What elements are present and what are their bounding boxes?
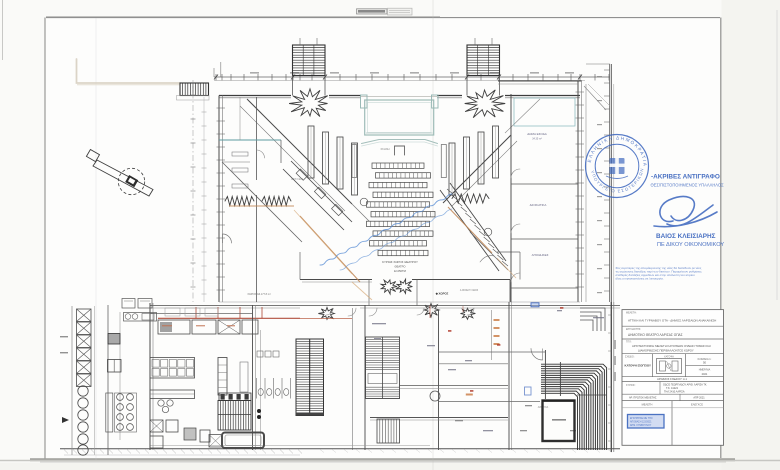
svg-text:ΔΙΟΙΚΗΤΙΚΑ: ΔΙΟΙΚΗΤΙΚΑ <box>530 203 547 207</box>
svg-text:ΚΥΡΙΩΣ ΧΩΡΟΣ ΘΕΑΤΡΟΥ: ΚΥΡΙΩΣ ΧΩΡΟΣ ΘΕΑΤΡΟΥ <box>382 260 418 264</box>
svg-text:ΚΑΤΟΨΗ ΙΣΟΓΕΙΟΥ: ΚΑΤΟΨΗ ΙΣΟΓΕΙΟΥ <box>625 364 652 368</box>
svg-text:ΑΠΡ 2021: ΑΠΡ 2021 <box>693 397 705 400</box>
svg-text:ΑΡΙΘΜΟΣ ΣΧΕΔΙΟΥ: Α.1: ΑΡΙΘΜΟΣ ΣΧΕΔΙΟΥ: Α.1 <box>657 377 687 381</box>
svg-text:ΑΠΟΘΗΚΕΣ: ΑΠΟΘΗΚΕΣ <box>532 253 549 257</box>
svg-text:ΟΔΟΣ ΓΕΩΡΓΙΑΔΟΥ ΑΡΙΘ. ΛΑΡΙΣΑ Τ: ΟΔΟΣ ΓΕΩΡΓΙΑΔΟΥ ΑΡΙΘ. ΛΑΡΙΣΑ ΤΚ <box>663 383 707 386</box>
svg-text:ΔΗΜΟΤΙΚΟ ΘΕΑΤΡΟ ΛΑΡΙΣΑΣ ΟΠΑΣ: ΔΗΜΟΤΙΚΟ ΘΕΑΤΡΟ ΛΑΡΙΣΑΣ ΟΠΑΣ <box>628 333 683 337</box>
svg-text:όλες οι εγκαταστάσεις σε λειτο: όλες οι εγκαταστάσεις σε λειτουργία. <box>616 277 664 281</box>
svg-text:ΕΓΚΡΙΘΗΚΕ ΜΕ ΤΗΝ: ΕΓΚΡΙΘΗΚΕ ΜΕ ΤΗΝ <box>630 418 653 420</box>
svg-text:ΒΑΙΟΣ ΚΛΕΙΣΙΑΡΗΣ: ΒΑΙΟΣ ΚΛΕΙΣΙΑΡΗΣ <box>656 233 716 240</box>
svg-text:ΑΡ. ΠΡΩΤΟΚ ΜΕΛΕΤΗΣ: ΑΡ. ΠΡΩΤΟΚ ΜΕΛΕΤΗΣ <box>629 397 657 400</box>
svg-text:ΗΜΕΡ/ΝΙΑ: ΗΜΕΡ/ΝΙΑ <box>699 369 711 372</box>
svg-text:ΘΕΣ/ΠΙΣΤΟΠΟΙΗΜΕΝΟΣ ΥΠΑΛΛΗΛΟΣ: ΘΕΣ/ΠΙΣΤΟΠΟΙΗΜΕΝΟΣ ΥΠΑΛΛΗΛΟΣ <box>651 183 725 188</box>
svg-text:ΑΤΤΙΚΗ ΚΑΙ ΤΥΡΝΑΒΟΥ ΟΤΑ - ΔΗΜΟ: ΑΤΤΙΚΗ ΚΑΙ ΤΥΡΝΑΒΟΥ ΟΤΑ - ΔΗΜΟΣ ΛΑΡΙΣΑΙΩ… <box>628 319 716 323</box>
svg-text:ΤΗΛ 2410 ΛΑΡΙΣΑ: ΤΗΛ 2410 ΛΑΡΙΣΑ <box>664 391 685 394</box>
svg-text:ΣΧΕΔΙΟ:: ΣΧΕΔΙΟ: <box>625 356 635 359</box>
svg-text:ΣΚΗΝΗ: ΣΚΗΝΗ <box>381 147 390 151</box>
svg-text:ΔΙΑΜΟΡΦΩΣΗΣ ΠΕΡΙΒΑΛΛΟΝΤΟΣ ΧΩΡΟ: ΔΙΑΜΟΡΦΩΣΗΣ ΠΕΡΙΒΑΛΛΟΝΤΟΣ ΧΩΡΟΥ <box>638 348 694 352</box>
svg-text:ΔΗΜ. ΣΥΜΒΟΥΛΙΟΥ: ΔΗΜ. ΣΥΜΒΟΥΛΙΟΥ <box>630 424 652 427</box>
svg-text:ΚΥΡΙΟΣ:: ΚΥΡΙΟΣ: <box>626 384 636 387</box>
svg-text:ΕΛΕΓΧΟΣ: ΕΛΕΓΧΟΣ <box>691 403 703 407</box>
svg-text:Α ΙΣΟΔΟΥ ΟΔΟΣ: Α ΙΣΟΔΟΥ ΟΔΟΣ <box>460 289 479 292</box>
svg-text:◆ ΧΩΡΟΣ: ◆ ΧΩΡΟΣ <box>435 292 449 296</box>
svg-text:ΚΑΤΟΨΗ: ΚΑΤΟΨΗ <box>664 355 674 358</box>
svg-text:-ΑΚΡΙΒΕΣ ΑΝΤΙΓΡΑΦΟ: -ΑΚΡΙΒΕΣ ΑΝΤΙΓΡΑΦΟ <box>651 174 720 181</box>
svg-text:ΘΕΑΤΡΟ: ΘΕΑΤΡΟ <box>395 265 406 269</box>
svg-text:Ε=250ΤΜ: Ε=250ΤΜ <box>394 269 406 273</box>
svg-text:ΔΩΜΑ ΕΣΟΔΑ: ΔΩΜΑ ΕΣΟΔΑ <box>527 132 547 136</box>
svg-text:Τ.Κ. 41222: Τ.Κ. 41222 <box>666 387 679 390</box>
svg-text:ΑΡΙΘ ΚΕΙΜ: ΑΡΙΘ ΚΕΙΜ <box>291 178 303 181</box>
svg-text:ΧΩΡΟΣ ΟΔ 177.8 m²: ΧΩΡΟΣ ΟΔ 177.8 m² <box>247 293 271 296</box>
svg-text:ΜΕΛΕΤΗ:: ΜΕΛΕΤΗ: <box>626 312 637 315</box>
svg-text:ΕΡΓΟΔΟΤΗΣ:: ΕΡΓΟΔΟΤΗΣ: <box>626 328 641 331</box>
svg-text:ΠΕ ΔΙΚΟΥ ΟΙΚΟΝΟΜΙΚΟΥ: ΠΕ ΔΙΚΟΥ ΟΙΚΟΝΟΜΙΚΟΥ <box>657 242 724 248</box>
svg-text:ΜΕΛΕΤΗ: ΜΕΛΕΤΗ <box>642 403 653 407</box>
svg-text:ΤΙΤΛ:: ΤΙΤΛ: <box>626 341 632 344</box>
svg-text:ΑΠΟΦΑΣΗ 123/2021: ΑΠΟΦΑΣΗ 123/2021 <box>630 421 652 424</box>
svg-text:34.35 m²: 34.35 m² <box>532 138 542 141</box>
svg-text:2021: 2021 <box>702 372 708 376</box>
svg-text:50: 50 <box>703 361 707 365</box>
